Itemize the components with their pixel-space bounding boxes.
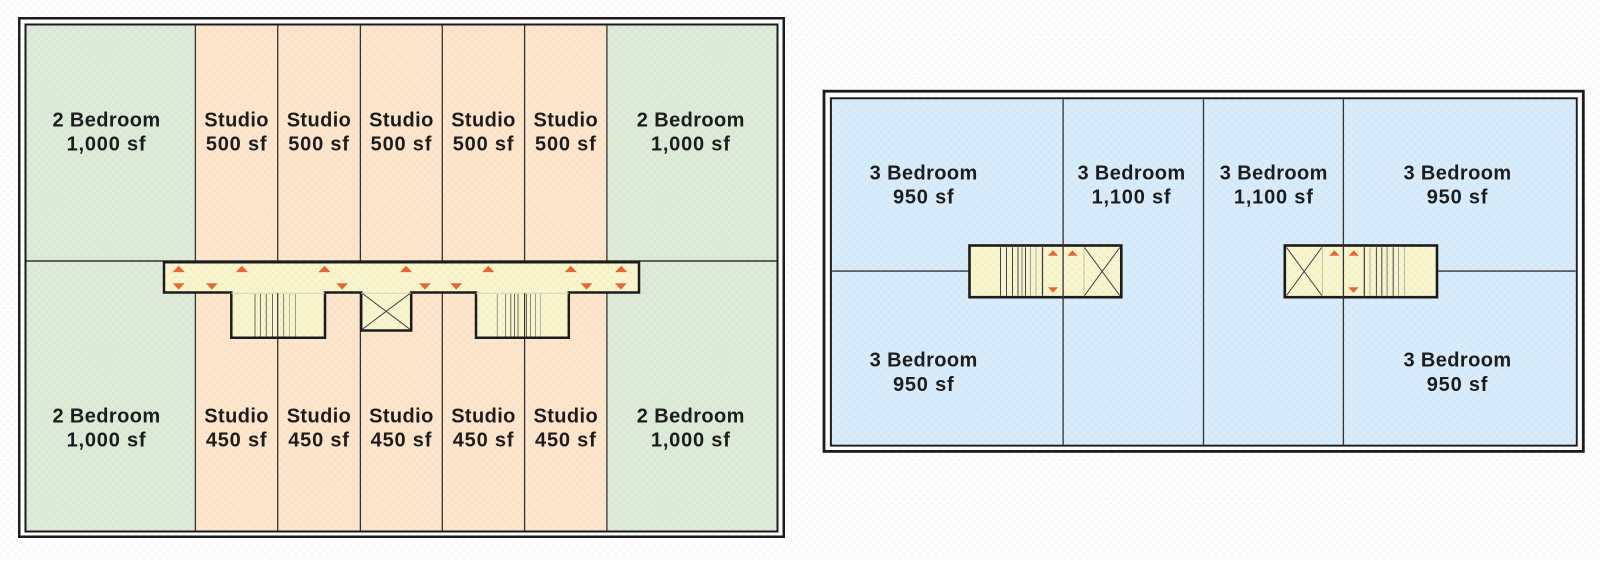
svg-text:2 Bedroom: 2 Bedroom (52, 109, 160, 131)
svg-text:1,000 sf: 1,000 sf (67, 134, 147, 156)
svg-text:1,000 sf: 1,000 sf (651, 134, 731, 156)
svg-text:450 sf: 450 sf (453, 430, 515, 452)
svg-text:950 sf: 950 sf (893, 374, 955, 396)
svg-text:3 Bedroom: 3 Bedroom (870, 350, 978, 372)
svg-text:950 sf: 950 sf (893, 187, 955, 209)
svg-text:1,000 sf: 1,000 sf (651, 430, 731, 452)
svg-text:3 Bedroom: 3 Bedroom (1403, 162, 1511, 184)
svg-text:950 sf: 950 sf (1427, 374, 1489, 396)
svg-text:450 sf: 450 sf (206, 430, 268, 452)
svg-text:3 Bedroom: 3 Bedroom (1220, 162, 1328, 184)
svg-text:950 sf: 950 sf (1427, 187, 1489, 209)
svg-text:Studio: Studio (369, 406, 434, 428)
svg-text:500 sf: 500 sf (453, 134, 515, 156)
svg-text:500 sf: 500 sf (371, 134, 433, 156)
svg-text:500 sf: 500 sf (206, 134, 268, 156)
svg-text:Studio: Studio (451, 109, 516, 131)
svg-text:Studio: Studio (204, 109, 269, 131)
svg-text:Studio: Studio (204, 406, 269, 428)
svg-text:450 sf: 450 sf (371, 430, 433, 452)
svg-text:500 sf: 500 sf (535, 134, 597, 156)
svg-text:2 Bedroom: 2 Bedroom (52, 406, 160, 428)
svg-text:Studio: Studio (451, 406, 516, 428)
svg-text:Studio: Studio (533, 109, 598, 131)
svg-text:450 sf: 450 sf (288, 430, 350, 452)
svg-text:Studio: Studio (369, 109, 434, 131)
svg-text:Studio: Studio (287, 406, 352, 428)
svg-text:1,100 sf: 1,100 sf (1092, 187, 1172, 209)
svg-text:1,100 sf: 1,100 sf (1234, 187, 1314, 209)
svg-text:2 Bedroom: 2 Bedroom (637, 406, 745, 428)
svg-text:500 sf: 500 sf (288, 134, 350, 156)
svg-text:2 Bedroom: 2 Bedroom (637, 109, 745, 131)
svg-text:Studio: Studio (287, 109, 352, 131)
svg-text:3 Bedroom: 3 Bedroom (1403, 350, 1511, 372)
svg-text:1,000 sf: 1,000 sf (67, 430, 147, 452)
svg-text:450 sf: 450 sf (535, 430, 597, 452)
svg-text:3 Bedroom: 3 Bedroom (870, 162, 978, 184)
svg-text:Studio: Studio (533, 406, 598, 428)
svg-text:3 Bedroom: 3 Bedroom (1077, 162, 1185, 184)
